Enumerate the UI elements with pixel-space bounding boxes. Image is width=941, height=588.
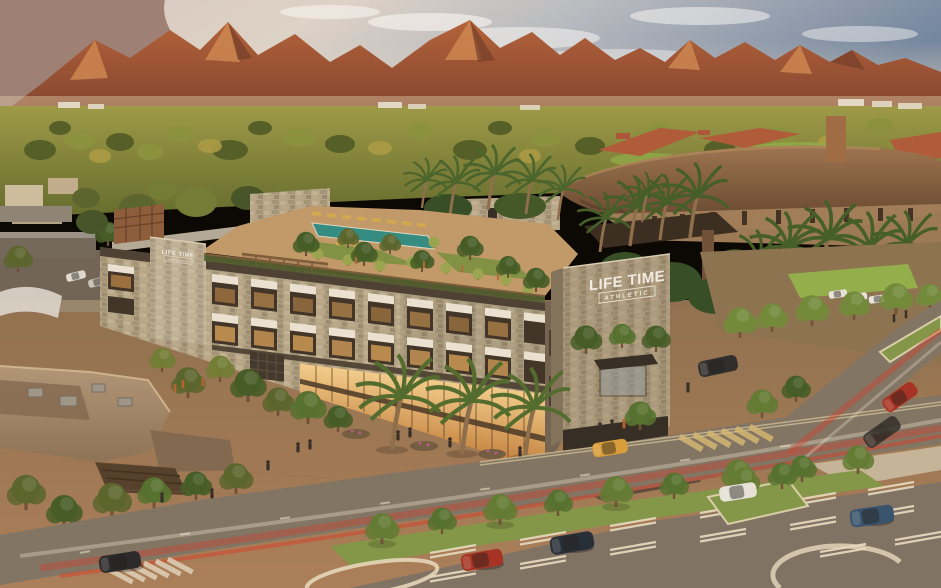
warm-light-overlay	[0, 0, 941, 588]
architectural-rendering: LIFE TIME ATHLETIC LIFE TIME ATHLETIC	[0, 0, 941, 588]
rendering-canvas: LIFE TIME ATHLETIC LIFE TIME ATHLETIC	[0, 0, 941, 588]
